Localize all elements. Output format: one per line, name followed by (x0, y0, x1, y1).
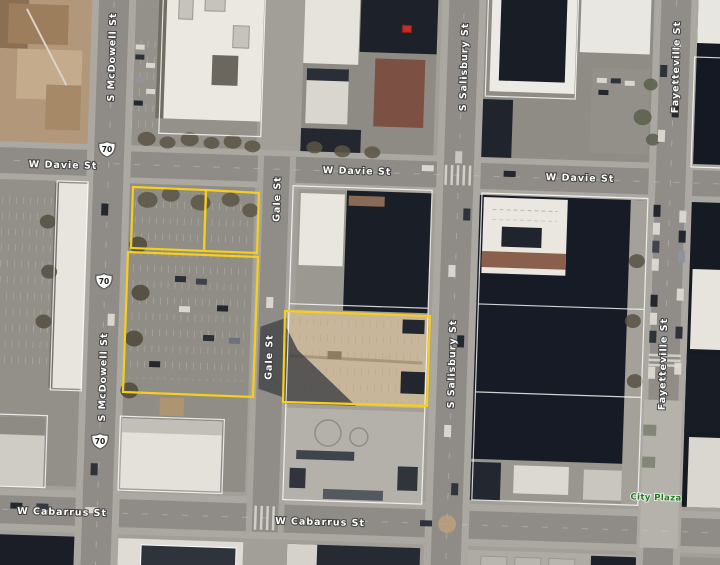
label-s-salisbury-top: S Salisbury St (458, 23, 471, 112)
label-s-mcdowell-top: S McDowell St (106, 12, 119, 101)
label-s-mcdowell-bottom: S McDowell St (97, 332, 110, 421)
route-shield-number: 70 (95, 437, 105, 446)
label-w-davie-left: W Davie St (29, 159, 98, 172)
label-gale-bottom: Gale St (263, 334, 275, 380)
route-shield-number: 70 (99, 277, 109, 286)
label-gale-top: Gale St (271, 176, 283, 222)
label-s-salisbury-bottom: S Salisbury St (446, 320, 459, 409)
label-w-davie-right: W Davie St (546, 172, 615, 185)
label-w-cabarrus-left: W Cabarrus St (17, 506, 107, 519)
map-canvas[interactable]: W Davie St W Davie St W Davie St W Cabar… (0, 0, 720, 565)
red-marker (402, 25, 411, 32)
map-viewport[interactable]: W Davie St W Davie St W Davie St W Cabar… (0, 0, 720, 565)
label-city-plaza: City Plaza (630, 492, 682, 503)
building-red-roof (373, 58, 425, 128)
label-w-davie-center: W Davie St (323, 165, 392, 178)
label-w-cabarrus-center: W Cabarrus St (275, 516, 365, 529)
block-top-middle (130, 0, 265, 150)
block-construction-site (0, 0, 94, 144)
city-plaza-surface (639, 399, 682, 548)
route-shield-number: 70 (102, 145, 112, 154)
block-center-right (470, 195, 648, 505)
block-top-center (300, 0, 439, 155)
